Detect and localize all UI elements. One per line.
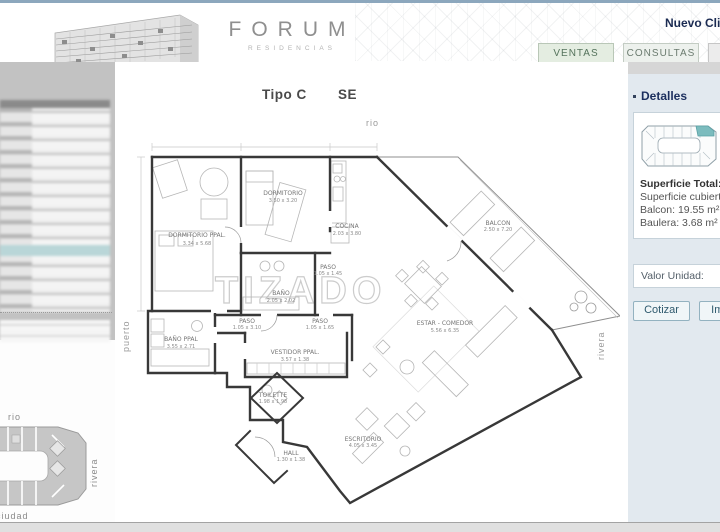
logo-subtitle: RESIDENCIAS bbox=[222, 45, 362, 52]
svg-text:1.05 x 1.65: 1.05 x 1.65 bbox=[306, 325, 334, 331]
siteplan-label-rio: rio bbox=[8, 412, 21, 422]
svg-text:ESCRITORIO: ESCRITORIO bbox=[345, 436, 382, 443]
svg-text:1.05 x 3.10: 1.05 x 3.10 bbox=[233, 325, 261, 331]
door-arcs bbox=[225, 227, 461, 457]
svg-text:DORMITORIO PPAL.: DORMITORIO PPAL. bbox=[168, 232, 226, 239]
svg-text:3.34 x 5.68: 3.34 x 5.68 bbox=[183, 241, 211, 247]
svg-text:BAÑO: BAÑO bbox=[272, 290, 290, 297]
right-sidebar: Detalles Superficie Total: Superficie cu… bbox=[628, 62, 720, 522]
svg-text:3.55 x 2.71: 3.55 x 2.71 bbox=[167, 344, 195, 350]
svg-text:BALCON: BALCON bbox=[486, 220, 511, 227]
print-button[interactable]: Imprimir bbox=[699, 301, 720, 321]
user-link[interactable]: Nuevo Cliente bbox=[665, 16, 720, 30]
svg-text:DORMITORIO: DORMITORIO bbox=[263, 190, 303, 197]
site-plan-image: rio ciudad rivera bbox=[0, 395, 115, 522]
plan-orientation-title: SE bbox=[338, 87, 357, 102]
logo-title: FORUM bbox=[222, 18, 362, 42]
svg-text:ESTAR - COMEDOR: ESTAR - COMEDOR bbox=[417, 320, 473, 327]
walls bbox=[148, 157, 581, 503]
siteplan-label-ciudad: ciudad bbox=[0, 511, 29, 521]
svg-text:4.05 x 3.45: 4.05 x 3.45 bbox=[349, 443, 377, 449]
svg-text:3.50 x 3.20: 3.50 x 3.20 bbox=[269, 198, 297, 204]
svg-text:VESTIDOR PPAL.: VESTIDOR PPAL. bbox=[271, 349, 320, 356]
dotted-separator bbox=[0, 312, 112, 313]
quote-button[interactable]: Cotizar bbox=[633, 301, 690, 321]
balcony-surface: Balcon: 19.55 m² bbox=[640, 204, 720, 217]
blurred-strip bbox=[0, 320, 110, 342]
unit-locator-thumbnail[interactable] bbox=[640, 119, 720, 173]
svg-text:2.03 x 3.80: 2.03 x 3.80 bbox=[333, 231, 361, 237]
highlighted-unit bbox=[696, 126, 714, 136]
plants bbox=[570, 291, 596, 313]
svg-text:TOILETTE: TOILETTE bbox=[258, 392, 288, 399]
sidebar-top-strip bbox=[628, 62, 720, 74]
header: FORUM RESIDENCIAS Nuevo Cliente VENTAS C… bbox=[0, 3, 720, 63]
svg-text:PASO: PASO bbox=[239, 318, 255, 325]
surface-covered: Superficie cubierta: bbox=[640, 191, 720, 204]
footer-bar bbox=[0, 522, 720, 532]
svg-text:PASO: PASO bbox=[312, 318, 328, 325]
left-sidebar: rio ciudad rivera bbox=[0, 62, 116, 522]
svg-text:1.05 x 1.45: 1.05 x 1.45 bbox=[314, 271, 342, 277]
svg-text:BAÑO PPAL: BAÑO PPAL bbox=[164, 336, 198, 343]
svg-text:2.50 x 7.20: 2.50 x 7.20 bbox=[484, 227, 512, 233]
details-title: Detalles bbox=[641, 89, 687, 103]
details-heading: Detalles bbox=[633, 89, 687, 103]
logo: FORUM RESIDENCIAS bbox=[222, 18, 362, 52]
balcony-railing bbox=[377, 157, 620, 330]
storage-surface: Baulera: 3.68 m² bbox=[640, 217, 720, 230]
tab-partial[interactable] bbox=[708, 43, 720, 64]
svg-text:3.57 x 1.38: 3.57 x 1.38 bbox=[281, 357, 309, 363]
surface-total: Superficie Total: bbox=[640, 178, 720, 191]
highlighted-row bbox=[0, 245, 110, 256]
svg-text:HALL: HALL bbox=[283, 450, 299, 457]
room-labels: DORMITORIO PPAL.3.34 x 5.68 DORMITORIO3.… bbox=[164, 190, 512, 463]
compass-rio: rio bbox=[366, 118, 379, 128]
svg-text:5.56 x 6.35: 5.56 x 6.35 bbox=[431, 328, 459, 334]
floor-plan: TIZADO bbox=[115, 135, 620, 515]
svg-text:1.30 x 1.38: 1.30 x 1.38 bbox=[277, 457, 305, 463]
unit-value-box: Valor Unidad: bbox=[633, 264, 720, 288]
plan-type-title: Tipo C bbox=[262, 87, 307, 102]
tab-ventas[interactable]: VENTAS bbox=[538, 43, 614, 64]
bullet-icon bbox=[633, 95, 636, 98]
svg-text:1.98 x 1.98: 1.98 x 1.98 bbox=[259, 399, 287, 405]
details-box: Superficie Total: Superficie cubierta: B… bbox=[633, 112, 720, 239]
siteplan-label-rivera: rivera bbox=[89, 458, 99, 487]
svg-text:2.05 x 2.02: 2.05 x 2.02 bbox=[267, 298, 295, 304]
blurred-price-table-image bbox=[0, 100, 110, 312]
svg-text:COCINA: COCINA bbox=[335, 223, 359, 230]
tab-consultas[interactable]: CONSULTAS bbox=[623, 43, 699, 64]
page: FORUM RESIDENCIAS Nuevo Cliente VENTAS C… bbox=[0, 0, 720, 532]
svg-text:PASO: PASO bbox=[320, 264, 336, 271]
